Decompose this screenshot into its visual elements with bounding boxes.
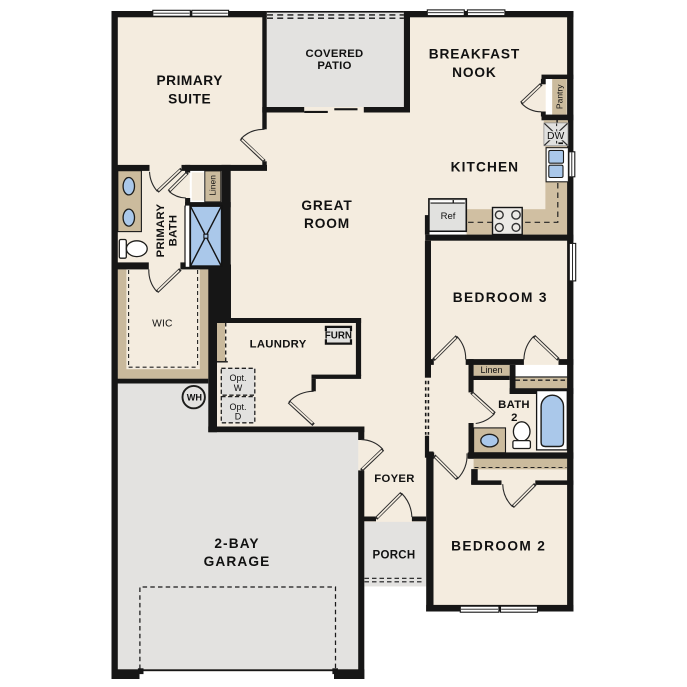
svg-text:2-BAY: 2-BAY bbox=[214, 536, 259, 551]
svg-text:BEDROOM 2: BEDROOM 2 bbox=[451, 539, 546, 554]
svg-text:BEDROOM 3: BEDROOM 3 bbox=[453, 290, 548, 305]
svg-text:Opt.: Opt. bbox=[229, 373, 246, 383]
svg-text:GREAT: GREAT bbox=[301, 198, 352, 213]
svg-text:PRIMARY: PRIMARY bbox=[155, 203, 167, 257]
svg-text:SUITE: SUITE bbox=[168, 91, 211, 106]
svg-text:DW: DW bbox=[547, 131, 565, 142]
svg-text:ROOM: ROOM bbox=[304, 216, 350, 231]
svg-text:WH: WH bbox=[187, 393, 203, 403]
svg-text:KITCHEN: KITCHEN bbox=[451, 160, 520, 175]
svg-text:Linen: Linen bbox=[208, 175, 218, 196]
svg-text:W: W bbox=[234, 383, 243, 393]
svg-text:COVERED: COVERED bbox=[306, 48, 364, 60]
svg-text:D: D bbox=[235, 412, 242, 422]
svg-text:PORCH: PORCH bbox=[372, 549, 415, 561]
svg-text:LAUNDRY: LAUNDRY bbox=[250, 338, 307, 350]
svg-text:PATIO: PATIO bbox=[317, 60, 351, 72]
svg-text:NOOK: NOOK bbox=[452, 65, 496, 80]
svg-text:BATH: BATH bbox=[168, 215, 180, 247]
svg-text:WIC: WIC bbox=[152, 319, 173, 330]
svg-text:PRIMARY: PRIMARY bbox=[156, 73, 222, 88]
svg-text:BREAKFAST: BREAKFAST bbox=[429, 47, 520, 62]
svg-text:GARAGE: GARAGE bbox=[204, 554, 271, 569]
svg-text:FOYER: FOYER bbox=[374, 473, 414, 485]
svg-text:Pantry: Pantry bbox=[554, 84, 564, 109]
svg-text:2: 2 bbox=[511, 412, 517, 424]
svg-text:Linen: Linen bbox=[480, 365, 502, 375]
svg-text:FURN: FURN bbox=[325, 331, 352, 342]
svg-text:Ref: Ref bbox=[441, 211, 456, 222]
svg-text:BATH: BATH bbox=[498, 399, 530, 411]
svg-text:Opt.: Opt. bbox=[229, 402, 246, 412]
